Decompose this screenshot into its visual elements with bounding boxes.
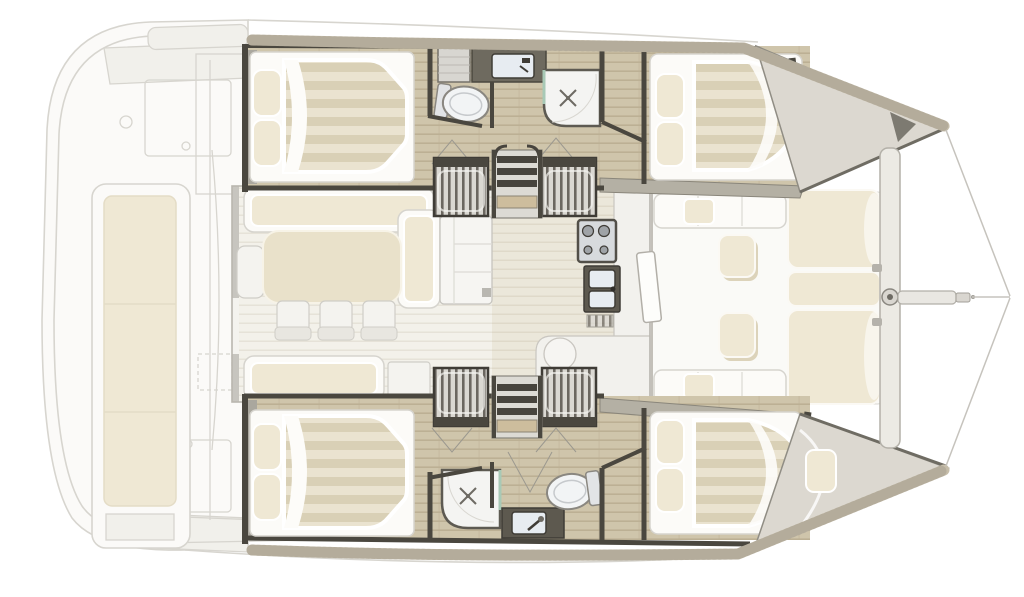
pillow: [253, 70, 281, 116]
bowsprit: [898, 291, 956, 304]
port-aft-cabin: [250, 52, 414, 182]
sunpads: [788, 190, 884, 404]
ladder-post: [538, 150, 542, 218]
bench-end-shelf: [106, 514, 174, 540]
pillow: [656, 420, 684, 464]
sofa-leg-cushion: [404, 216, 434, 302]
pillow: [656, 74, 684, 118]
pillow: [253, 120, 281, 166]
bridle-line-starboard: [946, 298, 1010, 466]
pillow: [253, 424, 281, 470]
drain: [566, 96, 570, 100]
cabinet-handle: [482, 288, 491, 297]
chair-back: [275, 327, 311, 340]
pillow: [656, 122, 684, 166]
ladder-rung: [497, 408, 537, 415]
burner: [583, 226, 594, 237]
ladder-post: [538, 376, 542, 438]
salon-aft-sofa: [244, 356, 430, 400]
companionway-steps-port-fwd: [542, 158, 596, 216]
bench-frame: [654, 194, 786, 228]
drain: [466, 494, 470, 498]
faucet: [522, 58, 530, 63]
salon-aft-door-opening: [232, 298, 239, 354]
storage-cabinet: [440, 216, 492, 304]
stove-top: [578, 220, 616, 262]
aft-sofa-cushion: [251, 363, 377, 394]
bench-cushion: [104, 196, 176, 506]
bow-cushion: [806, 450, 836, 492]
ottoman: [719, 313, 755, 357]
burner: [599, 226, 610, 237]
chair-back: [361, 327, 397, 340]
ladder-rung: [497, 156, 537, 163]
cleat: [872, 264, 882, 272]
faucet: [611, 287, 616, 292]
bench-pad: [684, 199, 714, 224]
companionway-steps-port-aft: [434, 158, 488, 216]
galley-vent: [587, 315, 613, 327]
steps-bottom-bar: [434, 417, 488, 426]
bowsprit-cap: [956, 293, 970, 302]
burner: [600, 246, 608, 254]
bench-pad: [684, 374, 714, 399]
side-panel: [388, 362, 430, 399]
shower: [544, 70, 600, 126]
chair-back: [318, 327, 354, 340]
helm-seat: [148, 24, 249, 49]
stove: [578, 220, 616, 262]
ladder-rung-wood: [497, 196, 537, 208]
ladder-rung: [497, 396, 537, 403]
ottoman: [719, 235, 755, 277]
sunpad: [788, 272, 880, 306]
companionway-steps-stbd-aft: [434, 368, 488, 426]
steps-bottom-bar: [542, 417, 596, 426]
faucet: [538, 516, 544, 522]
galley-sink: [584, 266, 620, 312]
ladder-rung: [497, 384, 537, 391]
round-basin: [544, 338, 576, 370]
pillow: [656, 468, 684, 512]
starboard-hull-aft-wall: [242, 394, 248, 544]
ladder-post: [492, 150, 496, 218]
bathroom-shelf: [438, 48, 470, 82]
steps-top-bar: [434, 158, 488, 167]
dining-chairs: [275, 301, 397, 340]
companionway-ladder-starboard: [492, 376, 542, 438]
cockpit-bench: [92, 184, 190, 548]
ladder-rung: [497, 168, 537, 175]
bridle-line-port: [946, 130, 1010, 296]
rigging: [872, 130, 1010, 466]
vanity-sink: [492, 54, 534, 78]
forward-cockpit: [636, 190, 884, 404]
companionway-steps-stbd-fwd: [542, 368, 596, 426]
ladder-rung: [497, 180, 537, 187]
floorplan-drawing: [0, 0, 1024, 597]
end-chair: [237, 246, 264, 298]
forward-bench-top: [654, 194, 786, 228]
pillow: [253, 474, 281, 520]
mast-step-center: [887, 294, 893, 300]
steps-top-bar: [542, 158, 596, 167]
companionway-ladder-port: [492, 146, 542, 218]
catamaran-floorplan: [0, 0, 1024, 597]
ladder-rung-wood: [497, 420, 537, 432]
vanity: [502, 508, 564, 538]
ladder-post: [492, 376, 496, 438]
cleat: [872, 318, 882, 326]
sink-bowl: [589, 270, 615, 288]
sink-bowl: [589, 291, 615, 308]
dining-table: [263, 231, 401, 303]
burner: [584, 246, 592, 254]
vanity: [472, 46, 546, 82]
starboard-aft-cabin: [250, 410, 414, 536]
port-hull-aft-wall: [242, 44, 248, 192]
